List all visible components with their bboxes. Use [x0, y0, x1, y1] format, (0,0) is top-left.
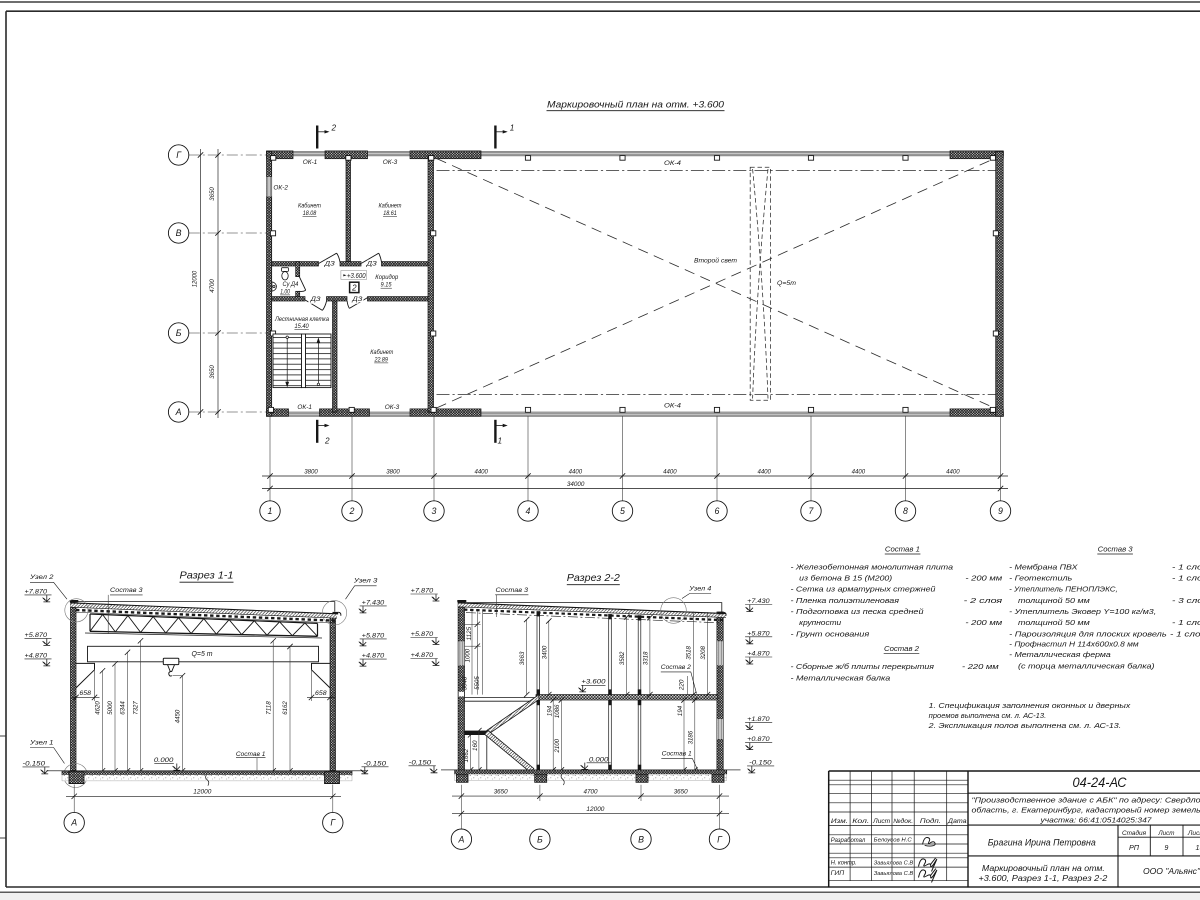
svg-text:- Сетка из арматурных стержней: - Сетка из арматурных стержней — [791, 585, 936, 594]
svg-text:Кабинет: Кабинет — [370, 348, 393, 356]
svg-text:- Утеплитель ПЕНОПЛЭКС,: - Утеплитель ПЕНОПЛЭКС, — [1009, 585, 1117, 594]
svg-text:3650: 3650 — [209, 187, 216, 201]
svg-text:Б: Б — [537, 834, 543, 844]
svg-text:1: 1 — [498, 437, 503, 446]
svg-text:9: 9 — [998, 506, 1003, 516]
svg-text:Кабинет: Кабинет — [298, 202, 321, 210]
svg-text:Q=5 т: Q=5 т — [192, 651, 213, 658]
svg-text:Состав 1: Состав 1 — [236, 751, 266, 758]
svg-text:18.61: 18.61 — [383, 210, 397, 217]
svg-text:+7.870: +7.870 — [25, 588, 48, 595]
svg-text:- 3 слоя: - 3 слоя — [1172, 596, 1200, 605]
svg-text:А: А — [457, 834, 464, 844]
svg-text:-0.150: -0.150 — [749, 759, 772, 766]
svg-text:Лист: Лист — [1157, 830, 1175, 837]
svg-text:- Металлическая балка: - Металлическая балка — [791, 673, 891, 682]
svg-text:658: 658 — [315, 690, 327, 697]
svg-text:Листов: Листов — [1187, 830, 1200, 837]
svg-text:Белоусов Н.С: Белоусов Н.С — [874, 838, 913, 844]
svg-text:Узел 2: Узел 2 — [29, 574, 54, 581]
svg-text:+5.870: +5.870 — [362, 632, 385, 639]
svg-text:+5.870: +5.870 — [25, 632, 48, 639]
svg-text:Лист: Лист — [872, 818, 890, 825]
svg-text:- Утеплитель Эковер Y=100 кг/м: - Утеплитель Эковер Y=100 кг/м3, — [1009, 607, 1156, 616]
svg-text:-0.150: -0.150 — [23, 760, 46, 767]
svg-text:22.89: 22.89 — [374, 356, 389, 363]
svg-text:3186: 3186 — [688, 730, 695, 744]
svg-text:6162: 6162 — [282, 701, 289, 715]
svg-text:№док.: №док. — [893, 818, 913, 825]
svg-text:ОК-3: ОК-3 — [383, 160, 398, 166]
svg-text:+5.870: +5.870 — [747, 630, 770, 637]
svg-text:7327: 7327 — [133, 701, 140, 715]
svg-text:ОК-2: ОК-2 — [273, 186, 288, 192]
svg-text:ООО "Альянс": ООО "Альянс" — [1143, 867, 1200, 876]
svg-text:15.40: 15.40 — [295, 323, 310, 330]
svg-text:область, г. Екатеринбург, када: область, г. Екатеринбург, кадастровый но… — [972, 806, 1200, 815]
svg-text:ДЗ: ДЗ — [351, 297, 363, 303]
svg-text:5: 5 — [620, 506, 625, 516]
svg-text:4700: 4700 — [209, 279, 216, 293]
svg-text:Изм.: Изм. — [831, 818, 848, 825]
svg-text:- 1 слой: - 1 слой — [1170, 629, 1200, 638]
svg-text:3582: 3582 — [619, 651, 626, 665]
svg-text:4400: 4400 — [946, 468, 960, 475]
svg-text:1086: 1086 — [554, 704, 561, 718]
svg-text:Подп.: Подп. — [920, 818, 941, 825]
svg-text:194: 194 — [677, 705, 684, 716]
svg-text:Брагина Ирина Петровна: Брагина Ирина Петровна — [988, 838, 1096, 848]
svg-text:220: 220 — [678, 679, 685, 691]
svg-text:Завьялова С.В: Завьялова С.В — [874, 861, 914, 867]
svg-text:ДЗ: ДЗ — [309, 297, 321, 303]
svg-text:+7.430: +7.430 — [747, 598, 770, 605]
svg-text:1662: 1662 — [463, 748, 470, 762]
svg-text:Состав 1: Состав 1 — [662, 751, 692, 758]
svg-text:ДЗ: ДЗ — [324, 261, 336, 267]
svg-text:4400: 4400 — [757, 468, 771, 475]
svg-text:1125: 1125 — [466, 626, 473, 640]
svg-text:Разрез 1-1: Разрез 1-1 — [180, 570, 234, 582]
svg-text:+4.870: +4.870 — [747, 651, 770, 658]
svg-text:2: 2 — [324, 437, 330, 446]
svg-text:ОК-3: ОК-3 — [385, 405, 400, 411]
svg-text:+4.870: +4.870 — [411, 652, 434, 659]
svg-text:04-24-АС: 04-24-АС — [1073, 775, 1127, 790]
svg-text:+3.600: +3.600 — [347, 271, 366, 280]
svg-text:7118: 7118 — [265, 701, 272, 715]
svg-text:3650: 3650 — [494, 788, 508, 795]
svg-text:Кабинет: Кабинет — [379, 202, 402, 210]
svg-text:Б: Б — [176, 328, 182, 338]
svg-text:Состав 2: Состав 2 — [661, 664, 691, 671]
svg-text:3318: 3318 — [643, 651, 650, 665]
svg-text:3048: 3048 — [461, 676, 468, 690]
svg-text:5000: 5000 — [107, 701, 114, 715]
svg-text:крупности: крупности — [799, 618, 841, 627]
svg-text:9.15: 9.15 — [381, 282, 392, 289]
svg-text:4400: 4400 — [663, 468, 677, 475]
svg-text:+3.600, Разрез 1-1, Разрез 2-2: +3.600, Разрез 1-1, Разрез 2-2 — [978, 874, 1108, 883]
svg-text:160: 160 — [472, 740, 479, 751]
svg-text:Состав 1: Состав 1 — [885, 544, 920, 553]
svg-text:4: 4 — [526, 506, 531, 516]
svg-text:- Сборные ж/б плиты перекрытия: - Сборные ж/б плиты перекрытия — [791, 662, 935, 671]
svg-text:А: А — [70, 818, 77, 828]
svg-text:ДЗ: ДЗ — [366, 261, 378, 267]
svg-text:12000: 12000 — [586, 806, 604, 813]
svg-text:А: А — [175, 407, 182, 417]
svg-text:34000: 34000 — [567, 481, 585, 488]
svg-text:- Пароизоляция для плоских кро: - Пароизоляция для плоских кровель — [1009, 629, 1167, 638]
svg-text:- Металлическая ферма: - Металлическая ферма — [1009, 650, 1110, 659]
svg-text:3: 3 — [432, 506, 437, 516]
svg-text:Узел 4: Узел 4 — [688, 586, 712, 593]
svg-text:Состав 3: Состав 3 — [1098, 544, 1134, 553]
svg-text:+3.600: +3.600 — [581, 679, 605, 686]
svg-text:- 220 мм: - 220 мм — [962, 662, 999, 671]
svg-text:(с торца металлическая балка): (с торца металлическая балка) — [1018, 662, 1155, 671]
svg-text:-0.150: -0.150 — [364, 760, 387, 767]
svg-text:3208: 3208 — [700, 646, 707, 660]
svg-text:- 1 слой: - 1 слой — [1172, 573, 1200, 582]
svg-text:- 200 мм: - 200 мм — [965, 573, 1002, 582]
svg-text:5505: 5505 — [474, 676, 481, 690]
svg-text:Маркировочный план на отм.: Маркировочный план на отм. — [982, 864, 1105, 873]
svg-text:3800: 3800 — [386, 468, 400, 475]
svg-text:Разработал: Разработал — [831, 837, 866, 844]
svg-text:- 1 слой: - 1 слой — [1172, 618, 1200, 627]
svg-text:+7.870: +7.870 — [411, 588, 434, 595]
svg-text:- Железобетонная монолитная п: - Железобетонная монолитная плита — [791, 563, 954, 572]
svg-text:6344: 6344 — [120, 701, 127, 715]
svg-text:3518: 3518 — [686, 646, 693, 660]
svg-text:Состав 2: Состав 2 — [884, 644, 919, 653]
svg-text:4620: 4620 — [95, 701, 102, 715]
svg-text:Кол.: Кол. — [852, 818, 869, 825]
svg-text:"Производственное здание с АБК: "Производственное здание с АБК" по адрес… — [972, 795, 1200, 804]
svg-text:Коридор: Коридор — [375, 273, 398, 281]
svg-text:ОК-1: ОК-1 — [297, 405, 312, 411]
svg-text:4450: 4450 — [175, 709, 182, 723]
svg-text:- Мембрана ПВХ: - Мембрана ПВХ — [1009, 563, 1079, 572]
svg-text:- 200 мм: - 200 мм — [965, 618, 1002, 627]
svg-text:РП: РП — [1129, 843, 1140, 852]
svg-text:3650: 3650 — [209, 365, 216, 379]
svg-text:Н. контр.: Н. контр. — [831, 860, 857, 867]
svg-text:Лестничная клетка: Лестничная клетка — [274, 316, 329, 323]
svg-text:+1.870: +1.870 — [747, 716, 770, 723]
svg-text:2: 2 — [349, 506, 355, 516]
svg-text:Q=5т: Q=5т — [777, 280, 797, 287]
svg-text:Дата: Дата — [947, 818, 967, 825]
svg-text:Состав 3: Состав 3 — [110, 587, 143, 594]
svg-text:- Пленка полиэтиленовая: - Пленка полиэтиленовая — [791, 596, 900, 605]
svg-text:1. Спецификация заполнения око: 1. Спецификация заполнения оконных и две… — [929, 701, 1131, 710]
svg-text:3800: 3800 — [304, 468, 318, 475]
svg-text:2100: 2100 — [554, 739, 561, 754]
svg-text:ГИП: ГИП — [831, 870, 845, 877]
svg-text:3400: 3400 — [542, 645, 549, 659]
svg-text:13: 13 — [1196, 843, 1200, 852]
svg-text:Узел 3: Узел 3 — [353, 578, 378, 585]
svg-text:- 1 слой: - 1 слой — [1172, 563, 1200, 572]
svg-text:ОК-4: ОК-4 — [664, 161, 682, 167]
svg-text:3650: 3650 — [674, 788, 688, 795]
svg-text:3663: 3663 — [519, 651, 526, 665]
svg-text:12000: 12000 — [191, 270, 198, 287]
svg-text:Состав 3: Состав 3 — [496, 587, 529, 594]
svg-text:8: 8 — [903, 506, 908, 516]
svg-text:- Подготовка из песка средней: - Подготовка из песка средней — [791, 607, 924, 616]
svg-text:+0.870: +0.870 — [747, 736, 770, 743]
svg-text:Второй свет: Второй свет — [694, 257, 738, 265]
svg-text:4400: 4400 — [569, 468, 583, 475]
svg-text:из бетона В 15 (М200): из бетона В 15 (М200) — [799, 573, 893, 582]
svg-text:Су Д4: Су Д4 — [283, 282, 299, 288]
svg-text:4700: 4700 — [584, 788, 598, 795]
svg-text:ОК-4: ОК-4 — [664, 404, 682, 410]
svg-text:9: 9 — [1164, 843, 1168, 852]
svg-text:1: 1 — [268, 506, 273, 516]
svg-text:Стадия: Стадия — [1122, 829, 1147, 837]
svg-text:194: 194 — [546, 705, 553, 716]
svg-text:1: 1 — [510, 124, 515, 133]
svg-text:В: В — [176, 228, 182, 238]
svg-text:+7.430: +7.430 — [362, 599, 385, 606]
svg-text:-0.150: -0.150 — [409, 759, 432, 766]
svg-text:0.000: 0.000 — [154, 757, 174, 764]
svg-text:18.08: 18.08 — [303, 210, 317, 217]
svg-text:В: В — [638, 834, 644, 844]
svg-text:12000: 12000 — [193, 789, 211, 796]
svg-text:Завьялова С.В: Завьялова С.В — [874, 871, 914, 877]
svg-text:1000: 1000 — [464, 648, 471, 662]
svg-text:2: 2 — [351, 283, 357, 292]
svg-text:2: 2 — [331, 124, 337, 133]
svg-text:4400: 4400 — [852, 468, 866, 475]
svg-text:+5.870: +5.870 — [411, 631, 434, 638]
svg-text:Узел 1: Узел 1 — [29, 739, 54, 746]
svg-text:- Грунт основания: - Грунт основания — [791, 629, 870, 638]
svg-text:Разрез 2-2: Разрез 2-2 — [567, 572, 620, 584]
svg-text:Маркировочный план на отм. +3.: Маркировочный план на отм. +3.600 — [547, 100, 725, 111]
svg-text:2. Экспликация полов выполнена: 2. Экспликация полов выполнена см. л. АС… — [928, 721, 1122, 730]
svg-text:4400: 4400 — [474, 468, 488, 475]
svg-text:+4.870: +4.870 — [362, 653, 385, 660]
svg-text:- Геотекстиль: - Геотекстиль — [1009, 573, 1072, 582]
svg-text:толщиной 50 мм: толщиной 50 мм — [1018, 596, 1090, 605]
svg-text:проемов выполнена см. л. АС-13: проемов выполнена см. л. АС-13. — [929, 711, 1047, 720]
svg-text:658: 658 — [79, 690, 91, 697]
svg-text:+4.870: +4.870 — [25, 652, 48, 659]
svg-text:0.000: 0.000 — [589, 756, 609, 763]
svg-text:толщиной 50 мм: толщиной 50 мм — [1018, 618, 1090, 627]
svg-text:участка: 66:41:0514025:347: участка: 66:41:0514025:347 — [1039, 816, 1152, 825]
svg-text:- Профнастил Н 114х600х0.8 мм: - Профнастил Н 114х600х0.8 мм — [1009, 640, 1138, 649]
svg-text:6: 6 — [715, 506, 720, 516]
svg-text:- 2 слоя: - 2 слоя — [964, 596, 1003, 605]
svg-text:ОК-1: ОК-1 — [303, 160, 318, 166]
